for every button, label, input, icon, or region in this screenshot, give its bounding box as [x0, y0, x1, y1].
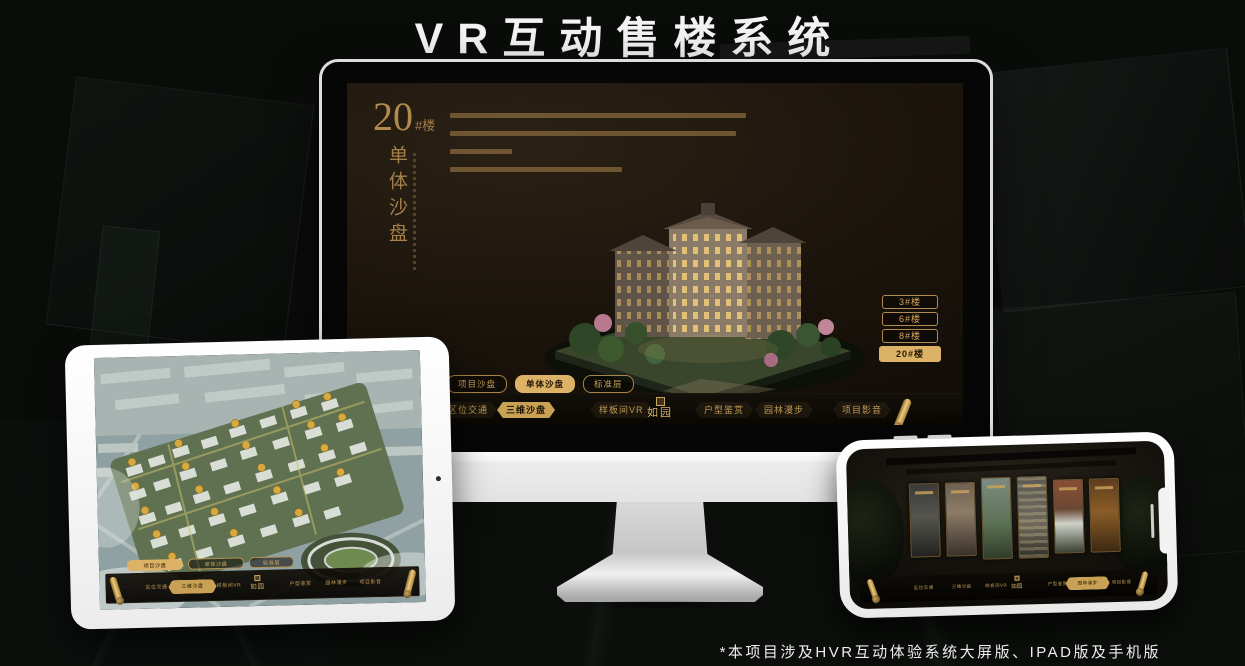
nav-label: 区位交通 — [145, 584, 167, 592]
background-collage-piece — [978, 48, 1245, 313]
brand-logo[interactable]: 如园 — [244, 575, 270, 593]
description-line — [450, 131, 736, 136]
nav-label: 户型鉴赏 — [1048, 581, 1068, 587]
nav-label: 项目影音 — [1112, 579, 1132, 585]
floor-button-20[interactable]: 20#楼 — [879, 346, 941, 362]
scene-card-autumn-landscape[interactable] — [1053, 479, 1085, 554]
footnote: *本项目涉及HVR互动体验系统大屏版、IPAD版及手机版 — [720, 641, 1161, 662]
tablet-tab-label: 项目沙盘 — [143, 563, 166, 569]
nav-label: 项目影音 — [359, 579, 381, 587]
tab-project-sandbox[interactable]: 项目沙盘 — [447, 375, 507, 393]
floor-button-6[interactable]: 6#楼 — [882, 312, 938, 326]
scroll-handle-icon[interactable] — [109, 576, 123, 603]
brand-logo-text: 如园 — [247, 582, 268, 591]
nav-label: 样板间VR — [217, 582, 242, 590]
phone-volume-button — [927, 435, 951, 440]
tablet-tab-standard-floor[interactable]: 标准层 — [249, 556, 294, 568]
brand-seal-icon — [656, 397, 665, 406]
brand-logo[interactable]: 如园 — [1005, 575, 1027, 592]
brand-logo[interactable]: 如园 — [640, 397, 680, 419]
brand-seal-icon — [254, 575, 260, 581]
building-number: 20 — [373, 94, 413, 139]
phone-notch — [1158, 487, 1171, 553]
scroll-handle-icon[interactable] — [866, 578, 879, 601]
description-line — [450, 113, 746, 118]
vertical-subtitle-line — [413, 153, 416, 273]
monitor-shadow — [540, 598, 780, 612]
scene-card-garden[interactable] — [981, 477, 1013, 560]
section-title-vertical: 单体沙盘 — [383, 145, 410, 249]
foliage-silhouette — [846, 478, 906, 590]
nav-label: 园林漫步 — [1078, 580, 1098, 586]
monitor-stand — [557, 502, 763, 602]
floor-button-3[interactable]: 3#楼 — [882, 295, 938, 309]
nav-label: 园林漫步 — [325, 579, 347, 587]
tablet-tab-single-sandbox[interactable]: 单体沙盘 — [188, 557, 244, 569]
scene-card-living-room[interactable] — [945, 482, 977, 557]
nav-label: 户型鉴赏 — [289, 580, 311, 588]
nav-label: 区位交通 — [914, 585, 934, 591]
nav-item-project-media[interactable]: 项目影音 — [833, 402, 891, 418]
sales-app-screen-phone: 区位交通 三维沙盘 样板间VR 如园 户型鉴赏 园林漫步 项目影音 — [846, 441, 1168, 610]
scene-card-building[interactable] — [1017, 476, 1049, 559]
scroll-handle-icon[interactable] — [403, 569, 416, 596]
phone-device: 区位交通 三维沙盘 样板间VR 如园 户型鉴赏 园林漫步 项目影音 — [836, 431, 1179, 618]
floor-button-8[interactable]: 8#楼 — [882, 329, 938, 343]
nav-label: 三维沙盘 — [181, 583, 203, 591]
nav-item-floorplan-gallery[interactable]: 户型鉴赏 — [695, 402, 753, 418]
nav-item-garden-walk[interactable]: 园林漫步 — [755, 402, 813, 418]
tablet-nav-item-project-media[interactable]: 项目影音 — [348, 575, 392, 590]
tablet-tab-label: 标准层 — [263, 560, 280, 566]
nav-label: 样板间VR — [985, 583, 1007, 589]
building-headline: 20#楼 — [373, 97, 435, 137]
brand-seal-icon — [1014, 576, 1019, 581]
scene-card-cabinet[interactable] — [1089, 478, 1121, 553]
tablet-device: 项目沙盘 单体沙盘 标准层 区位交通 三维沙盘 样板间VR 如园 户型鉴赏 园林… — [65, 336, 456, 629]
scroll-handle-icon[interactable] — [1137, 571, 1149, 594]
scroll-handle-icon[interactable] — [894, 398, 913, 425]
phone-volume-button — [893, 435, 917, 440]
sales-app-screen-tablet: 项目沙盘 单体沙盘 标准层 区位交通 三维沙盘 样板间VR 如园 户型鉴赏 园林… — [94, 350, 426, 610]
tab-single-sandbox[interactable]: 单体沙盘 — [515, 375, 575, 393]
phone-navbar: 区位交通 三维沙盘 样板间VR 如园 户型鉴赏 园林漫步 项目影音 — [859, 569, 1158, 603]
brand-logo-text: 如园 — [1009, 582, 1025, 590]
background-collage-piece — [46, 76, 315, 353]
tablet-tab-label: 单体沙盘 — [204, 561, 227, 567]
floor-button-group: 3#楼 6#楼 8#楼 20#楼 — [878, 295, 942, 365]
tab-standard-floor[interactable]: 标准层 — [583, 375, 634, 393]
building-3d-model — [515, 153, 887, 399]
nav-label: 三维沙盘 — [952, 584, 972, 590]
description-line — [450, 149, 512, 154]
building-number-suffix: #楼 — [415, 118, 435, 133]
scene-card-interior[interactable] — [909, 483, 941, 558]
poster-canvas: VR互动售楼系统 20#楼 单体沙盘 — [0, 0, 1245, 666]
tablet-tab-project-sandbox[interactable]: 项目沙盘 — [127, 559, 183, 571]
nav-item-3d-sandbox[interactable]: 三维沙盘 — [497, 402, 555, 418]
page-title: VR互动售楼系统 — [0, 4, 1245, 66]
brand-logo-text: 如园 — [640, 407, 680, 419]
tablet-camera-dot — [436, 476, 441, 481]
sandbox-tab-group: 项目沙盘 单体沙盘 标准层 — [447, 375, 634, 393]
